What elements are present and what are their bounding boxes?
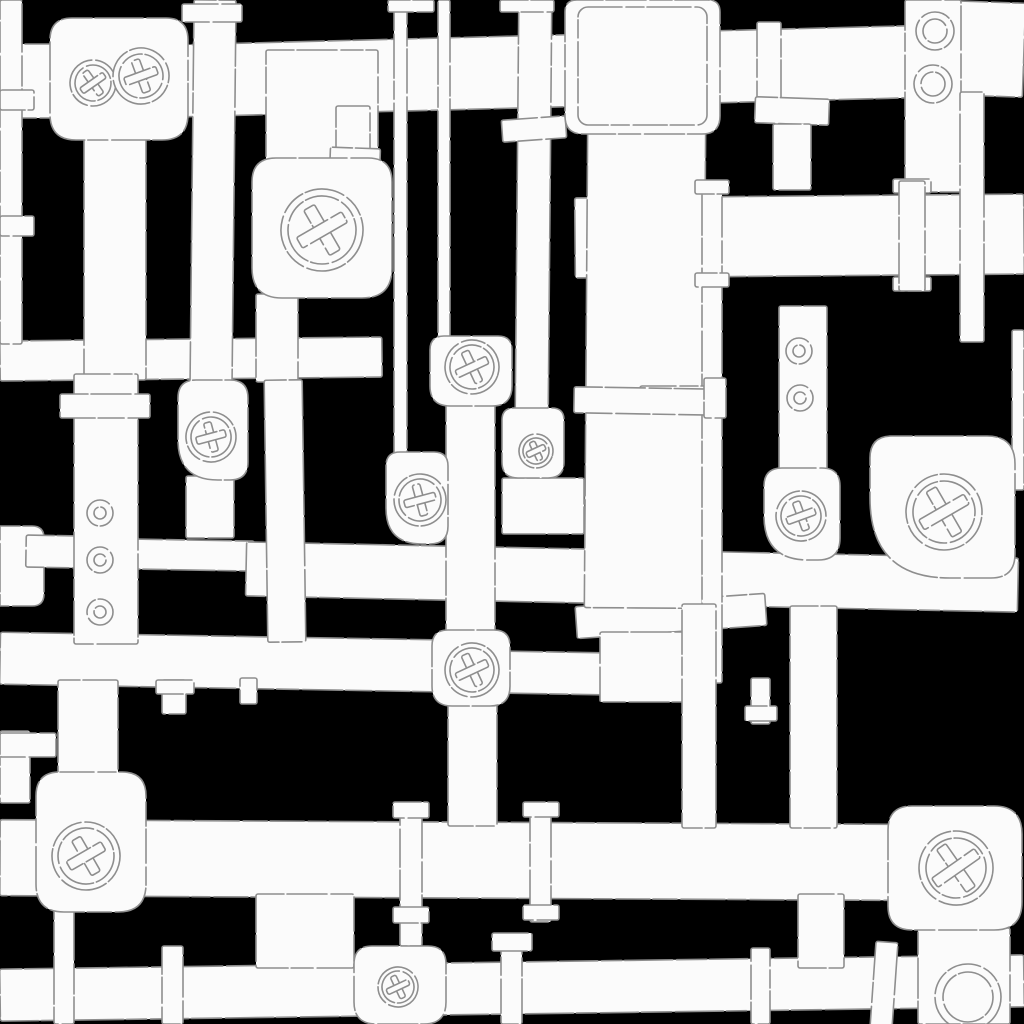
pipe-collar: [899, 181, 925, 291]
rivet-outer: [87, 599, 113, 625]
pipe-v700-wide: [682, 604, 716, 828]
pipe-left-upper: [84, 126, 146, 380]
rivet-outer: [87, 500, 113, 526]
pipe-conn-right: [798, 894, 844, 968]
pipe-b2-down: [256, 294, 298, 382]
pipe-v282: [264, 380, 306, 643]
rivet: [87, 547, 113, 573]
rivet: [787, 385, 813, 411]
flange: [745, 706, 777, 721]
pipe-v396: [394, 0, 407, 460]
flange: [388, 0, 434, 12]
flange: [501, 116, 566, 142]
rivet-outer: [787, 385, 813, 411]
flange: [523, 905, 559, 920]
pipe-junction-mid: [502, 478, 584, 534]
pipe-v165: [162, 946, 183, 1024]
pipe-v194: [190, 0, 236, 392]
pipe-v970: [960, 92, 984, 342]
rivet: [786, 338, 812, 364]
rivet-outer: [786, 338, 812, 364]
pipe-v880: [870, 941, 898, 1024]
pipe-b8-down: [186, 476, 234, 538]
pipe-f400: [400, 806, 422, 946]
flange: [523, 802, 559, 817]
pipe-conn-left: [256, 894, 354, 968]
pipe-v800-down: [790, 606, 837, 828]
rivet: [87, 599, 113, 625]
flange: [704, 378, 726, 418]
pipe-center-wide: [584, 126, 705, 609]
flange: [0, 90, 34, 110]
fitting-box-top: [565, 0, 720, 134]
flange: [393, 907, 429, 923]
pipe-h5-seg: [126, 539, 255, 571]
pipe-stub248: [240, 678, 257, 704]
flange: [695, 180, 729, 194]
flange: [60, 394, 150, 418]
pipe-stub352: [336, 106, 370, 152]
flange: [755, 97, 830, 126]
pipe-h6-stub: [506, 651, 605, 695]
pipe-ring-br: [918, 928, 1010, 1024]
pipes-artwork-svg: [0, 0, 1024, 1024]
rivet: [87, 500, 113, 526]
pipe-v442: [438, 0, 450, 344]
flange: [492, 933, 532, 951]
pipe-v55: [54, 906, 74, 1024]
flange: [182, 4, 242, 22]
pipe-junction-right: [600, 632, 684, 702]
flange-wide: [574, 387, 718, 416]
pipe-center-v: [446, 400, 495, 636]
flange: [500, 0, 554, 12]
pipe-left-edge: [0, 0, 22, 344]
pipe-lstub-h: [0, 733, 56, 757]
pipe-v14: [448, 702, 497, 826]
flange: [156, 680, 194, 694]
pipe-t-stub: [773, 124, 811, 190]
pipe-v520: [515, 0, 552, 414]
flange: [393, 802, 429, 818]
pipe-b11-feed: [58, 680, 118, 776]
flange: [695, 273, 729, 287]
pipe-v750: [751, 948, 770, 1024]
rivet-outer: [87, 547, 113, 573]
flange: [0, 216, 34, 236]
pipe-pattern-illustration: [0, 0, 1024, 1024]
